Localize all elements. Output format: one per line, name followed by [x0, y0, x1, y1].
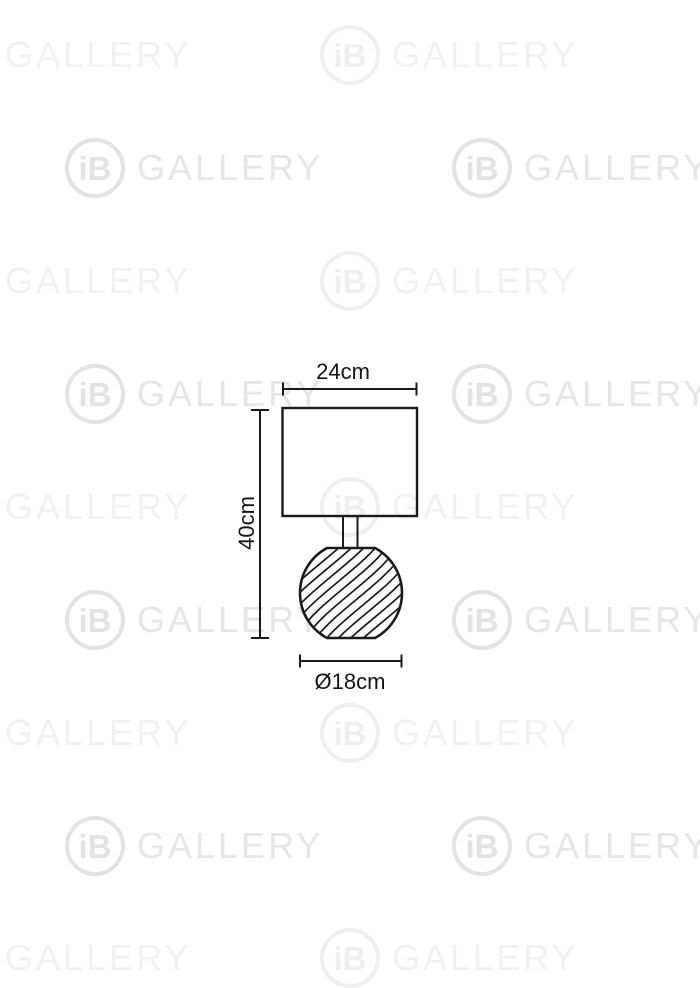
page: { "watermark": { "brand_short": "iB", "b… — [0, 0, 700, 980]
width-dimension — [283, 383, 417, 396]
height-label: 40cm — [234, 496, 259, 550]
lamp-base-swirl-pattern — [268, 510, 434, 676]
diameter-label: Ø18cm — [315, 669, 386, 694]
diameter-dimension — [300, 655, 402, 668]
lamp-dimension-drawing: 24cm 40cm Ø18c — [0, 0, 700, 980]
lamp-shade — [283, 408, 418, 516]
lamp-stem — [343, 516, 358, 548]
width-label: 24cm — [316, 359, 370, 384]
